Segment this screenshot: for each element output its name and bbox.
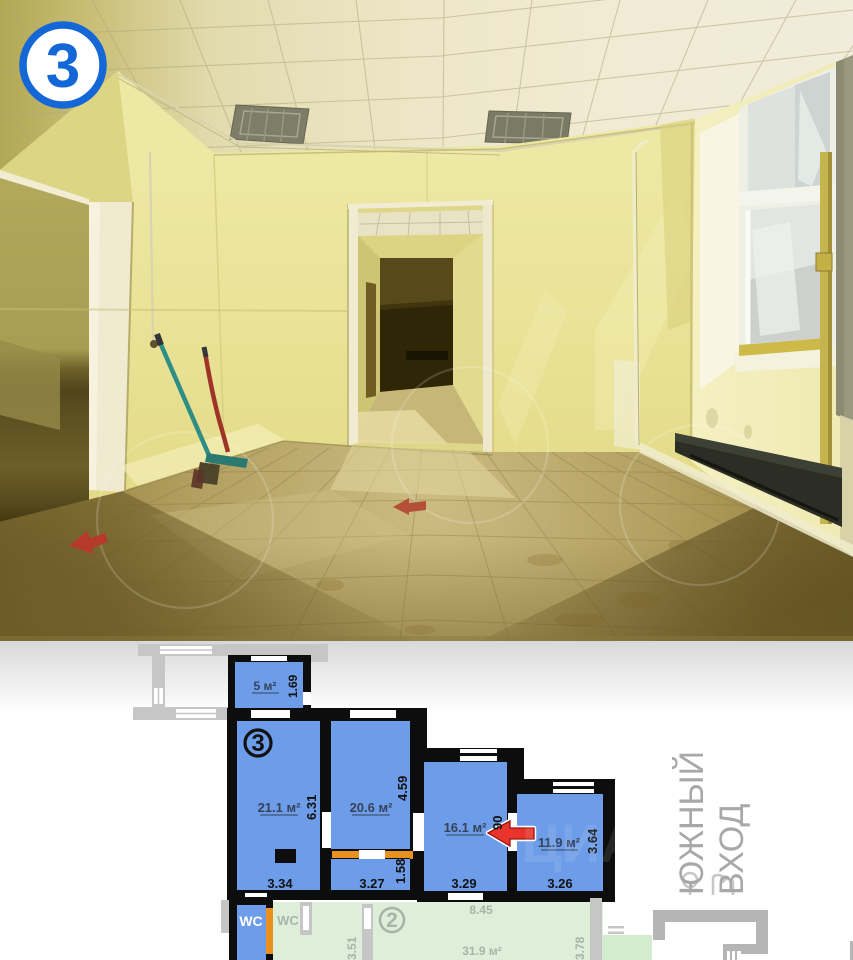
svg-text:21.1 м²: 21.1 м² (258, 800, 302, 815)
svg-text:1.69: 1.69 (286, 674, 300, 698)
svg-text:ВХОД: ВХОД (713, 804, 751, 895)
svg-text:3: 3 (251, 730, 264, 757)
svg-text:16.1 м²: 16.1 м² (444, 820, 488, 835)
svg-text:3: 3 (46, 32, 80, 101)
svg-text:3.29: 3.29 (451, 876, 476, 891)
svg-text:6.31: 6.31 (304, 795, 319, 820)
svg-text:90: 90 (490, 816, 505, 830)
svg-text:2: 2 (386, 909, 398, 932)
svg-text:ЮЖНЫЙ: ЮЖНЫЙ (673, 751, 711, 895)
svg-text:5 м²: 5 м² (254, 679, 277, 693)
svg-text:1.58: 1.58 (393, 859, 408, 884)
svg-text:20.6 м²: 20.6 м² (350, 800, 394, 815)
svg-text:3.26: 3.26 (547, 876, 572, 891)
svg-text:3.51: 3.51 (345, 936, 359, 960)
svg-text:8.45: 8.45 (469, 903, 493, 917)
svg-text:ЦИАН: ЦИАН (522, 814, 678, 874)
svg-text:3.78: 3.78 (573, 936, 587, 960)
svg-text:3.34: 3.34 (267, 876, 293, 891)
svg-text:3.27: 3.27 (359, 876, 384, 891)
svg-text:4.59: 4.59 (395, 776, 410, 801)
svg-text:WC: WC (239, 913, 262, 929)
svg-text:31.9 м²: 31.9 м² (462, 944, 502, 958)
svg-text:WC: WC (277, 913, 299, 928)
